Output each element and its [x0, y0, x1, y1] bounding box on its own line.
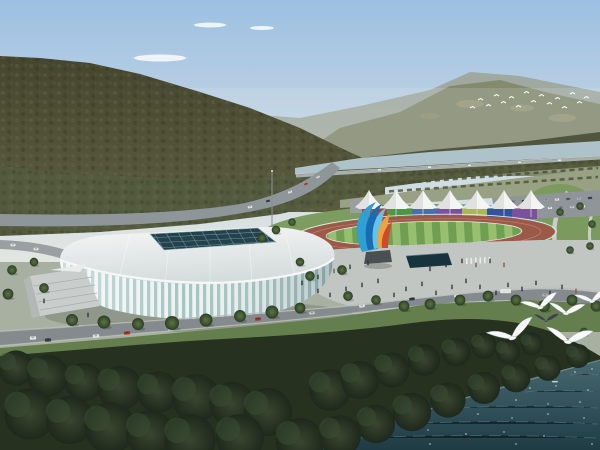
person	[43, 299, 45, 304]
sparkle	[591, 368, 592, 369]
sparkle	[515, 443, 516, 444]
forest-tree	[393, 393, 431, 431]
sparkle	[547, 403, 548, 404]
aerial-stadium-rendering	[0, 0, 600, 450]
sparkle	[579, 401, 581, 403]
sparkle	[543, 435, 545, 437]
car	[93, 334, 100, 338]
sparkle	[465, 433, 467, 435]
car-distant	[558, 160, 561, 162]
sparkle	[555, 385, 556, 386]
person	[333, 269, 335, 274]
forest-tree	[502, 364, 531, 393]
car	[577, 197, 581, 199]
forest-tree	[471, 333, 497, 359]
person	[317, 289, 319, 294]
person	[361, 283, 363, 288]
car	[11, 244, 16, 247]
sparkle	[583, 417, 584, 418]
person	[561, 285, 563, 290]
sparkle	[574, 371, 576, 373]
forest-tree	[341, 361, 379, 399]
forest-tree	[357, 405, 395, 443]
boat-wake	[552, 381, 558, 382]
forest-tree	[496, 340, 520, 364]
person	[445, 263, 447, 268]
car	[570, 206, 574, 208]
car	[124, 331, 131, 335]
person	[489, 259, 491, 264]
person	[475, 263, 477, 268]
car	[309, 311, 315, 314]
car	[588, 197, 592, 199]
person	[329, 293, 331, 298]
person	[503, 263, 505, 268]
forest-tree	[65, 363, 103, 401]
person	[521, 287, 523, 292]
person	[575, 289, 577, 294]
sparkle	[429, 443, 431, 445]
car	[566, 198, 570, 200]
forest-tree	[374, 352, 409, 387]
forest-tree	[535, 355, 561, 381]
person	[317, 275, 319, 280]
forest-tree	[408, 344, 440, 376]
person	[435, 291, 437, 296]
person	[345, 287, 347, 292]
car	[30, 336, 37, 340]
person	[393, 293, 395, 298]
person	[451, 285, 453, 290]
sparkle	[587, 389, 589, 391]
car	[34, 248, 39, 251]
car	[255, 317, 261, 321]
car	[555, 198, 559, 200]
person	[87, 313, 89, 318]
person	[479, 285, 481, 290]
car	[542, 293, 548, 296]
sparkle	[529, 387, 531, 389]
car	[45, 338, 52, 342]
person	[405, 287, 407, 292]
forest-tree	[430, 382, 465, 417]
scene-canvas	[0, 0, 600, 450]
person	[429, 267, 431, 272]
sparkle	[427, 429, 428, 430]
person	[465, 279, 467, 284]
person	[495, 291, 497, 296]
forest-tree	[442, 338, 471, 367]
sparkle	[477, 413, 479, 415]
person	[301, 281, 303, 286]
bus	[500, 289, 511, 293]
car-distant	[468, 165, 471, 167]
sparkle	[547, 413, 549, 415]
person	[421, 282, 423, 287]
car	[544, 199, 548, 201]
sparkle	[515, 399, 517, 401]
forest-tree	[521, 333, 543, 355]
person	[507, 283, 509, 288]
panel-segment	[512, 208, 537, 219]
person	[349, 265, 351, 270]
person	[461, 259, 463, 264]
car-distant	[428, 167, 431, 169]
person	[377, 279, 379, 284]
car	[548, 207, 552, 209]
car-distant	[378, 169, 381, 171]
forest-tree	[566, 344, 590, 368]
person	[535, 281, 537, 286]
person	[367, 261, 369, 266]
forest-tree	[468, 372, 500, 404]
sparkle	[591, 443, 593, 445]
car-distant	[518, 162, 521, 164]
sparkle	[511, 417, 512, 418]
sparkle	[503, 431, 504, 432]
